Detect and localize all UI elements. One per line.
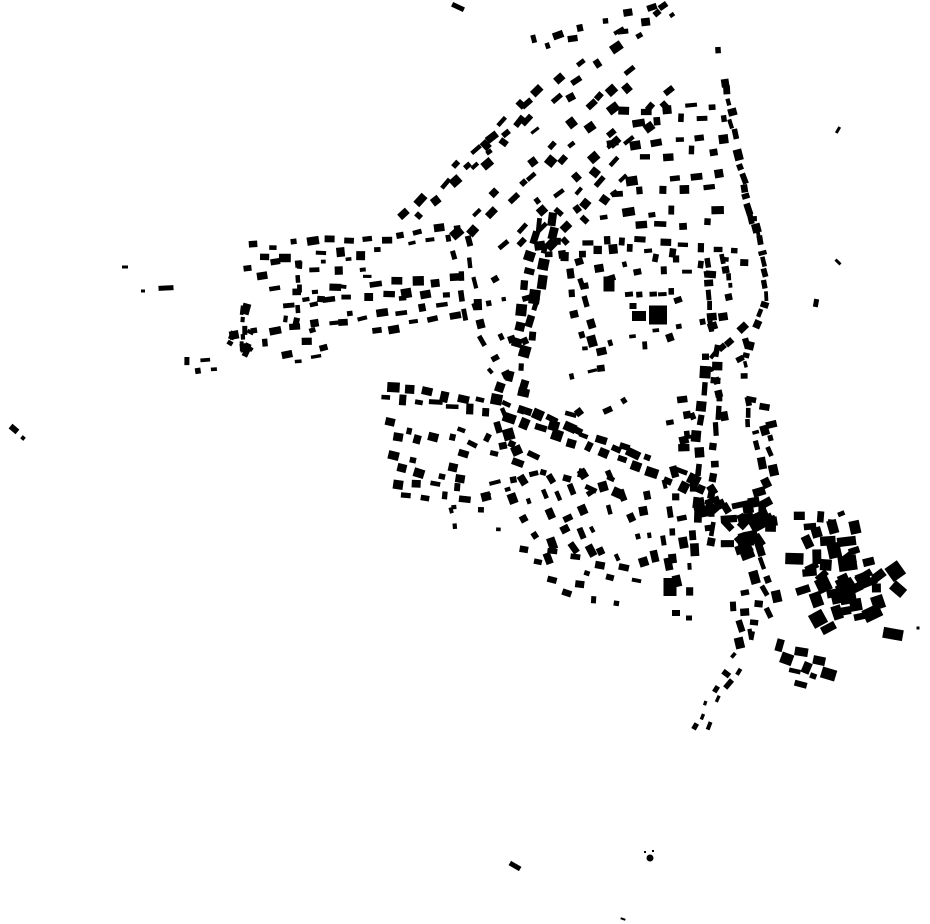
- building: [547, 576, 558, 584]
- building: [558, 250, 567, 259]
- building: [756, 308, 763, 317]
- building: [650, 138, 662, 147]
- building: [652, 850, 654, 852]
- building: [321, 260, 326, 264]
- building: [517, 474, 529, 487]
- building: [774, 638, 785, 652]
- building: [475, 396, 484, 403]
- building: [310, 319, 319, 328]
- building: [626, 512, 636, 523]
- building: [718, 312, 728, 321]
- building: [709, 442, 717, 450]
- building: [848, 520, 861, 535]
- building: [579, 198, 591, 211]
- building: [458, 290, 465, 302]
- building: [709, 148, 718, 156]
- building: [642, 341, 647, 349]
- building: [820, 559, 832, 571]
- building: [547, 548, 557, 554]
- building: [240, 341, 244, 351]
- building: [750, 619, 759, 625]
- building: [623, 8, 633, 17]
- building: [714, 247, 723, 252]
- building: [884, 560, 906, 582]
- building: [319, 344, 328, 352]
- building: [393, 432, 404, 442]
- building: [756, 235, 763, 245]
- building: [472, 208, 482, 218]
- building: [405, 385, 415, 394]
- building: [728, 283, 732, 288]
- building: [748, 570, 761, 585]
- building: [839, 589, 857, 606]
- building: [583, 121, 596, 134]
- building: [582, 346, 588, 350]
- building: [597, 447, 609, 459]
- building: [889, 580, 907, 598]
- building: [706, 290, 712, 301]
- building: [413, 193, 427, 207]
- building: [710, 377, 720, 384]
- building: [662, 105, 672, 114]
- building: [569, 310, 579, 319]
- building: [735, 668, 742, 676]
- building: [490, 393, 503, 406]
- building: [530, 84, 544, 97]
- building: [696, 401, 707, 412]
- building: [450, 250, 457, 260]
- building: [430, 279, 440, 288]
- building: [279, 254, 291, 263]
- building: [632, 578, 642, 584]
- building: [685, 103, 697, 108]
- building: [515, 304, 527, 317]
- building: [582, 240, 593, 245]
- building: [647, 532, 652, 538]
- building: [295, 305, 300, 313]
- building: [295, 275, 300, 283]
- building: [364, 293, 373, 301]
- building: [649, 306, 667, 325]
- building: [740, 589, 749, 596]
- building: [567, 141, 575, 149]
- building: [758, 557, 766, 570]
- building: [614, 553, 621, 561]
- building: [704, 271, 710, 278]
- buildings-layer: [9, 1, 920, 921]
- building: [475, 318, 485, 329]
- building: [360, 267, 366, 272]
- building: [817, 511, 825, 523]
- figure-ground-map: [0, 0, 930, 924]
- building: [540, 469, 547, 476]
- building: [302, 297, 310, 302]
- building: [711, 461, 719, 468]
- building: [409, 319, 418, 324]
- building: [440, 178, 451, 190]
- building: [779, 651, 794, 666]
- building: [427, 432, 439, 443]
- building: [470, 144, 482, 155]
- building: [669, 12, 675, 18]
- building: [812, 549, 821, 564]
- building: [767, 434, 773, 441]
- building: [690, 173, 702, 181]
- building: [673, 255, 679, 262]
- building: [689, 530, 697, 540]
- building: [713, 344, 721, 357]
- building: [644, 851, 646, 853]
- building: [691, 722, 699, 730]
- building: [446, 404, 459, 409]
- building: [554, 490, 562, 501]
- building: [443, 292, 450, 298]
- building: [760, 256, 767, 267]
- building: [376, 308, 389, 317]
- building: [466, 403, 474, 414]
- building: [659, 186, 666, 194]
- building: [702, 354, 709, 360]
- building: [763, 575, 772, 584]
- building: [712, 362, 723, 371]
- building: [607, 339, 613, 346]
- building: [463, 161, 472, 170]
- building: [433, 223, 444, 232]
- building: [457, 426, 466, 433]
- building: [734, 637, 745, 650]
- building: [488, 187, 499, 198]
- building: [396, 463, 407, 473]
- building: [632, 311, 646, 321]
- building: [679, 223, 687, 230]
- building: [663, 85, 675, 96]
- building: [195, 368, 201, 375]
- building: [544, 42, 550, 49]
- building: [741, 373, 748, 379]
- building: [721, 266, 729, 274]
- building: [309, 267, 319, 272]
- building: [678, 113, 684, 122]
- building: [562, 474, 572, 482]
- building: [415, 399, 424, 405]
- building: [725, 98, 731, 106]
- building: [569, 373, 575, 380]
- building: [200, 358, 210, 363]
- building: [619, 237, 625, 245]
- building: [669, 528, 675, 535]
- building: [485, 206, 498, 219]
- building: [703, 701, 707, 706]
- building: [605, 573, 614, 581]
- building: [668, 206, 674, 215]
- building: [707, 313, 717, 321]
- building: [498, 333, 505, 341]
- building: [158, 285, 173, 291]
- building: [621, 82, 633, 94]
- building: [743, 361, 748, 368]
- building: [872, 584, 881, 593]
- building: [309, 327, 316, 334]
- building: [685, 435, 693, 439]
- building: [316, 251, 326, 255]
- building: [591, 596, 596, 603]
- building: [561, 588, 572, 597]
- building: [608, 244, 618, 254]
- building: [498, 239, 510, 250]
- building: [742, 503, 754, 513]
- building: [593, 58, 603, 69]
- building: [577, 467, 589, 480]
- building: [686, 616, 692, 621]
- building: [122, 266, 128, 269]
- building: [514, 321, 525, 332]
- building: [527, 156, 538, 167]
- building: [589, 166, 601, 178]
- building: [498, 442, 507, 450]
- building: [577, 527, 587, 540]
- building: [649, 292, 657, 297]
- building: [812, 655, 826, 666]
- building: [665, 332, 675, 342]
- building: [690, 543, 699, 556]
- building: [609, 156, 620, 167]
- building: [529, 470, 539, 477]
- building: [714, 169, 724, 179]
- building: [644, 466, 659, 479]
- building: [752, 216, 757, 221]
- building: [454, 483, 461, 491]
- building: [794, 680, 808, 689]
- building: [537, 258, 550, 271]
- building: [709, 104, 716, 110]
- building: [566, 438, 577, 449]
- building: [627, 244, 633, 252]
- building: [519, 514, 529, 524]
- building: [618, 107, 629, 115]
- building: [753, 440, 760, 450]
- building: [740, 608, 749, 616]
- building: [635, 221, 647, 229]
- building: [660, 535, 666, 546]
- building: [467, 257, 473, 268]
- building: [723, 678, 734, 689]
- building: [374, 247, 381, 252]
- building: [438, 473, 446, 480]
- building: [606, 504, 613, 515]
- building: [622, 207, 636, 217]
- building: [746, 408, 751, 418]
- building: [740, 184, 748, 193]
- building: [519, 178, 528, 187]
- building: [597, 365, 605, 373]
- building: [442, 491, 448, 499]
- building: [262, 338, 268, 346]
- building: [483, 433, 492, 443]
- building: [661, 266, 667, 274]
- building: [574, 187, 583, 196]
- building: [451, 2, 465, 12]
- building: [531, 408, 545, 422]
- building: [560, 220, 573, 233]
- building: [585, 543, 598, 557]
- building: [624, 65, 636, 76]
- building: [715, 695, 721, 703]
- building: [345, 257, 351, 261]
- building: [341, 295, 351, 300]
- building: [496, 116, 507, 127]
- building: [622, 261, 628, 267]
- building: [430, 195, 442, 207]
- building: [270, 258, 280, 266]
- building: [704, 258, 711, 268]
- building: [720, 515, 737, 523]
- building: [636, 291, 643, 297]
- building: [518, 363, 523, 371]
- building: [511, 457, 525, 468]
- building: [761, 268, 769, 278]
- building: [695, 497, 706, 511]
- building: [508, 192, 521, 204]
- building: [309, 301, 318, 307]
- building: [620, 917, 625, 921]
- building: [526, 498, 532, 505]
- building: [718, 134, 729, 144]
- building: [605, 84, 619, 98]
- building: [643, 490, 651, 500]
- building: [430, 480, 441, 486]
- building: [470, 162, 479, 171]
- building: [673, 296, 683, 304]
- building: [629, 334, 636, 338]
- building: [862, 557, 875, 567]
- building: [582, 282, 589, 289]
- building: [256, 271, 268, 280]
- building: [382, 237, 392, 244]
- building: [745, 419, 750, 427]
- building: [381, 395, 390, 400]
- building: [570, 553, 580, 560]
- building: [699, 318, 706, 325]
- building: [593, 246, 601, 254]
- building: [395, 310, 407, 316]
- building: [544, 154, 558, 168]
- building: [652, 328, 659, 332]
- building: [668, 288, 674, 295]
- building: [557, 154, 568, 165]
- building: [715, 406, 721, 420]
- building: [487, 367, 494, 374]
- building: [471, 277, 478, 289]
- building: [658, 292, 667, 296]
- building: [666, 506, 673, 518]
- building: [336, 247, 345, 257]
- building: [712, 685, 720, 693]
- building: [618, 563, 629, 572]
- building: [461, 308, 468, 321]
- building: [706, 721, 713, 730]
- building: [387, 382, 400, 393]
- building: [586, 334, 598, 348]
- building: [703, 184, 715, 190]
- building: [306, 236, 319, 246]
- building: [678, 444, 690, 452]
- building: [697, 116, 708, 121]
- building: [917, 627, 920, 630]
- building: [599, 194, 611, 206]
- building: [524, 267, 535, 275]
- building: [562, 513, 573, 523]
- building: [759, 403, 770, 411]
- building: [695, 464, 702, 477]
- building: [347, 311, 353, 317]
- building: [721, 115, 727, 122]
- building: [686, 587, 693, 595]
- building: [638, 556, 650, 568]
- building: [480, 157, 494, 171]
- building: [603, 18, 609, 24]
- building: [530, 126, 539, 134]
- building: [567, 35, 578, 43]
- building: [295, 359, 302, 363]
- building: [785, 553, 804, 565]
- building: [726, 273, 731, 280]
- building: [635, 32, 643, 40]
- building: [768, 464, 780, 477]
- building: [680, 185, 690, 194]
- building: [600, 214, 608, 220]
- map-viewport: [0, 0, 930, 924]
- building: [801, 661, 813, 675]
- building: [652, 253, 659, 262]
- building: [682, 270, 692, 274]
- building: [527, 450, 541, 461]
- building: [311, 354, 322, 359]
- building: [408, 240, 416, 245]
- building: [882, 627, 904, 641]
- building: [700, 713, 705, 720]
- building: [493, 421, 503, 434]
- building: [644, 248, 652, 253]
- building: [565, 116, 578, 129]
- building: [594, 91, 604, 101]
- building: [269, 326, 282, 336]
- building: [568, 289, 575, 297]
- building: [547, 141, 556, 151]
- building: [445, 234, 451, 242]
- building: [243, 265, 252, 272]
- building: [338, 319, 348, 326]
- building: [454, 225, 461, 232]
- building: [711, 206, 724, 214]
- building: [482, 408, 489, 417]
- building: [529, 331, 537, 340]
- building: [478, 507, 484, 513]
- building: [716, 394, 722, 402]
- building: [835, 126, 841, 134]
- building: [596, 347, 607, 357]
- building: [552, 30, 564, 40]
- building: [663, 153, 674, 161]
- building: [459, 495, 471, 503]
- building: [636, 186, 643, 194]
- building: [647, 855, 654, 862]
- building: [654, 221, 666, 227]
- building: [466, 224, 479, 237]
- building: [249, 241, 258, 248]
- building: [543, 552, 554, 565]
- building: [730, 601, 736, 611]
- building: [490, 275, 499, 284]
